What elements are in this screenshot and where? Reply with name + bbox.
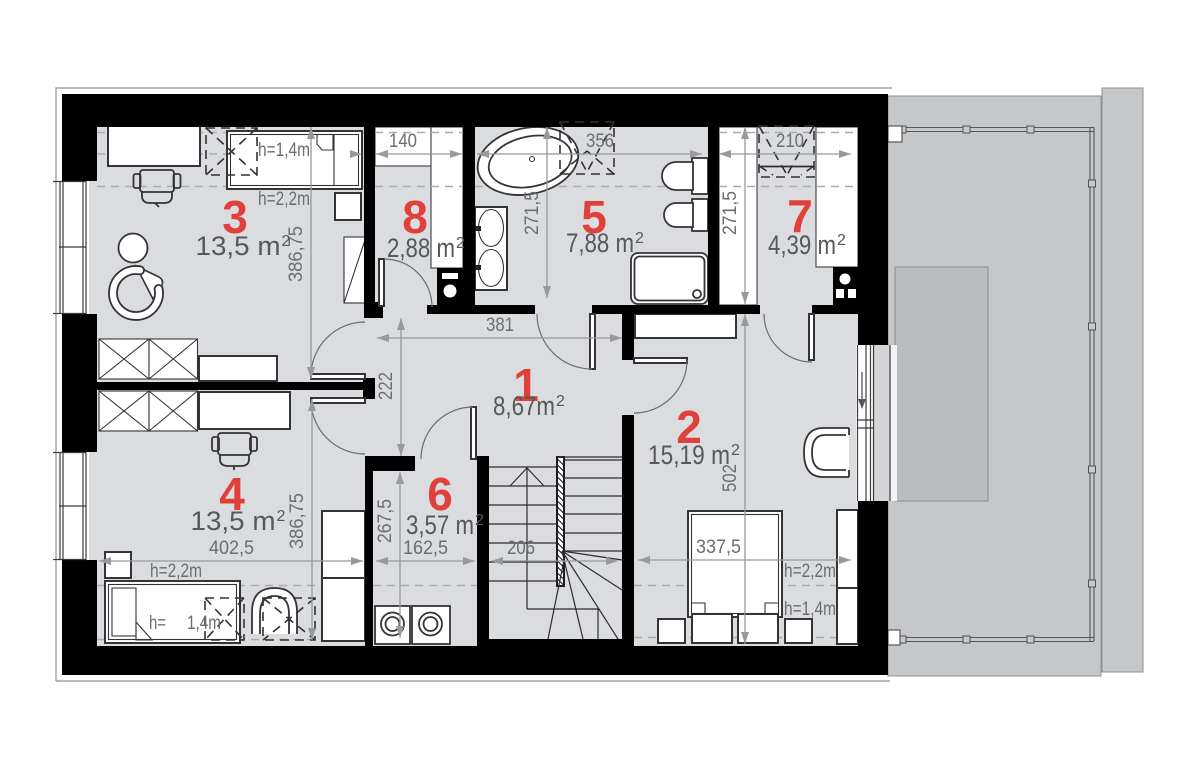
svg-text:162,5: 162,5 — [403, 538, 448, 559]
svg-text:206: 206 — [507, 538, 535, 559]
svg-text:h=2,2m: h=2,2m — [150, 561, 202, 582]
svg-text:h=1,4m: h=1,4m — [258, 140, 310, 161]
svg-text:8,67m: 8,67m — [493, 391, 555, 421]
svg-text:222: 222 — [376, 372, 397, 400]
svg-text:337,5: 337,5 — [696, 537, 741, 558]
svg-text:2: 2 — [556, 393, 565, 410]
svg-text:381: 381 — [486, 315, 514, 336]
svg-text:2: 2 — [837, 232, 846, 249]
svg-text:2: 2 — [456, 235, 465, 252]
svg-text:7,88 m: 7,88 m — [566, 228, 634, 258]
svg-text:13,5 m: 13,5 m — [196, 231, 281, 261]
svg-text:140: 140 — [389, 131, 417, 152]
svg-text:402,5: 402,5 — [209, 538, 254, 559]
svg-text:h=2,2m: h=2,2m — [258, 189, 310, 210]
svg-text:267,5: 267,5 — [375, 499, 396, 543]
svg-text:h=2,2m: h=2,2m — [784, 561, 836, 582]
svg-text:h=: h= — [149, 613, 166, 634]
svg-text:15,19 m: 15,19 m — [648, 440, 730, 470]
svg-text:3,57 m: 3,57 m — [406, 510, 474, 540]
svg-text:h=1,4m: h=1,4m — [784, 599, 836, 620]
svg-text:2: 2 — [475, 512, 484, 529]
svg-text:2: 2 — [277, 508, 286, 525]
svg-text:4,39 m: 4,39 m — [768, 230, 836, 260]
svg-text:13,5 m: 13,5 m — [191, 506, 276, 536]
svg-text:2: 2 — [731, 442, 740, 459]
svg-text:1,4m: 1,4m — [187, 613, 221, 634]
svg-text:271,5: 271,5 — [720, 191, 741, 235]
svg-text:2: 2 — [635, 230, 644, 247]
svg-text:271,5: 271,5 — [522, 191, 543, 235]
svg-text:2: 2 — [282, 233, 291, 250]
svg-text:2,88 m: 2,88 m — [387, 233, 455, 263]
svg-text:356: 356 — [586, 131, 614, 152]
svg-text:386,75: 386,75 — [287, 493, 308, 549]
svg-text:210: 210 — [776, 131, 804, 152]
